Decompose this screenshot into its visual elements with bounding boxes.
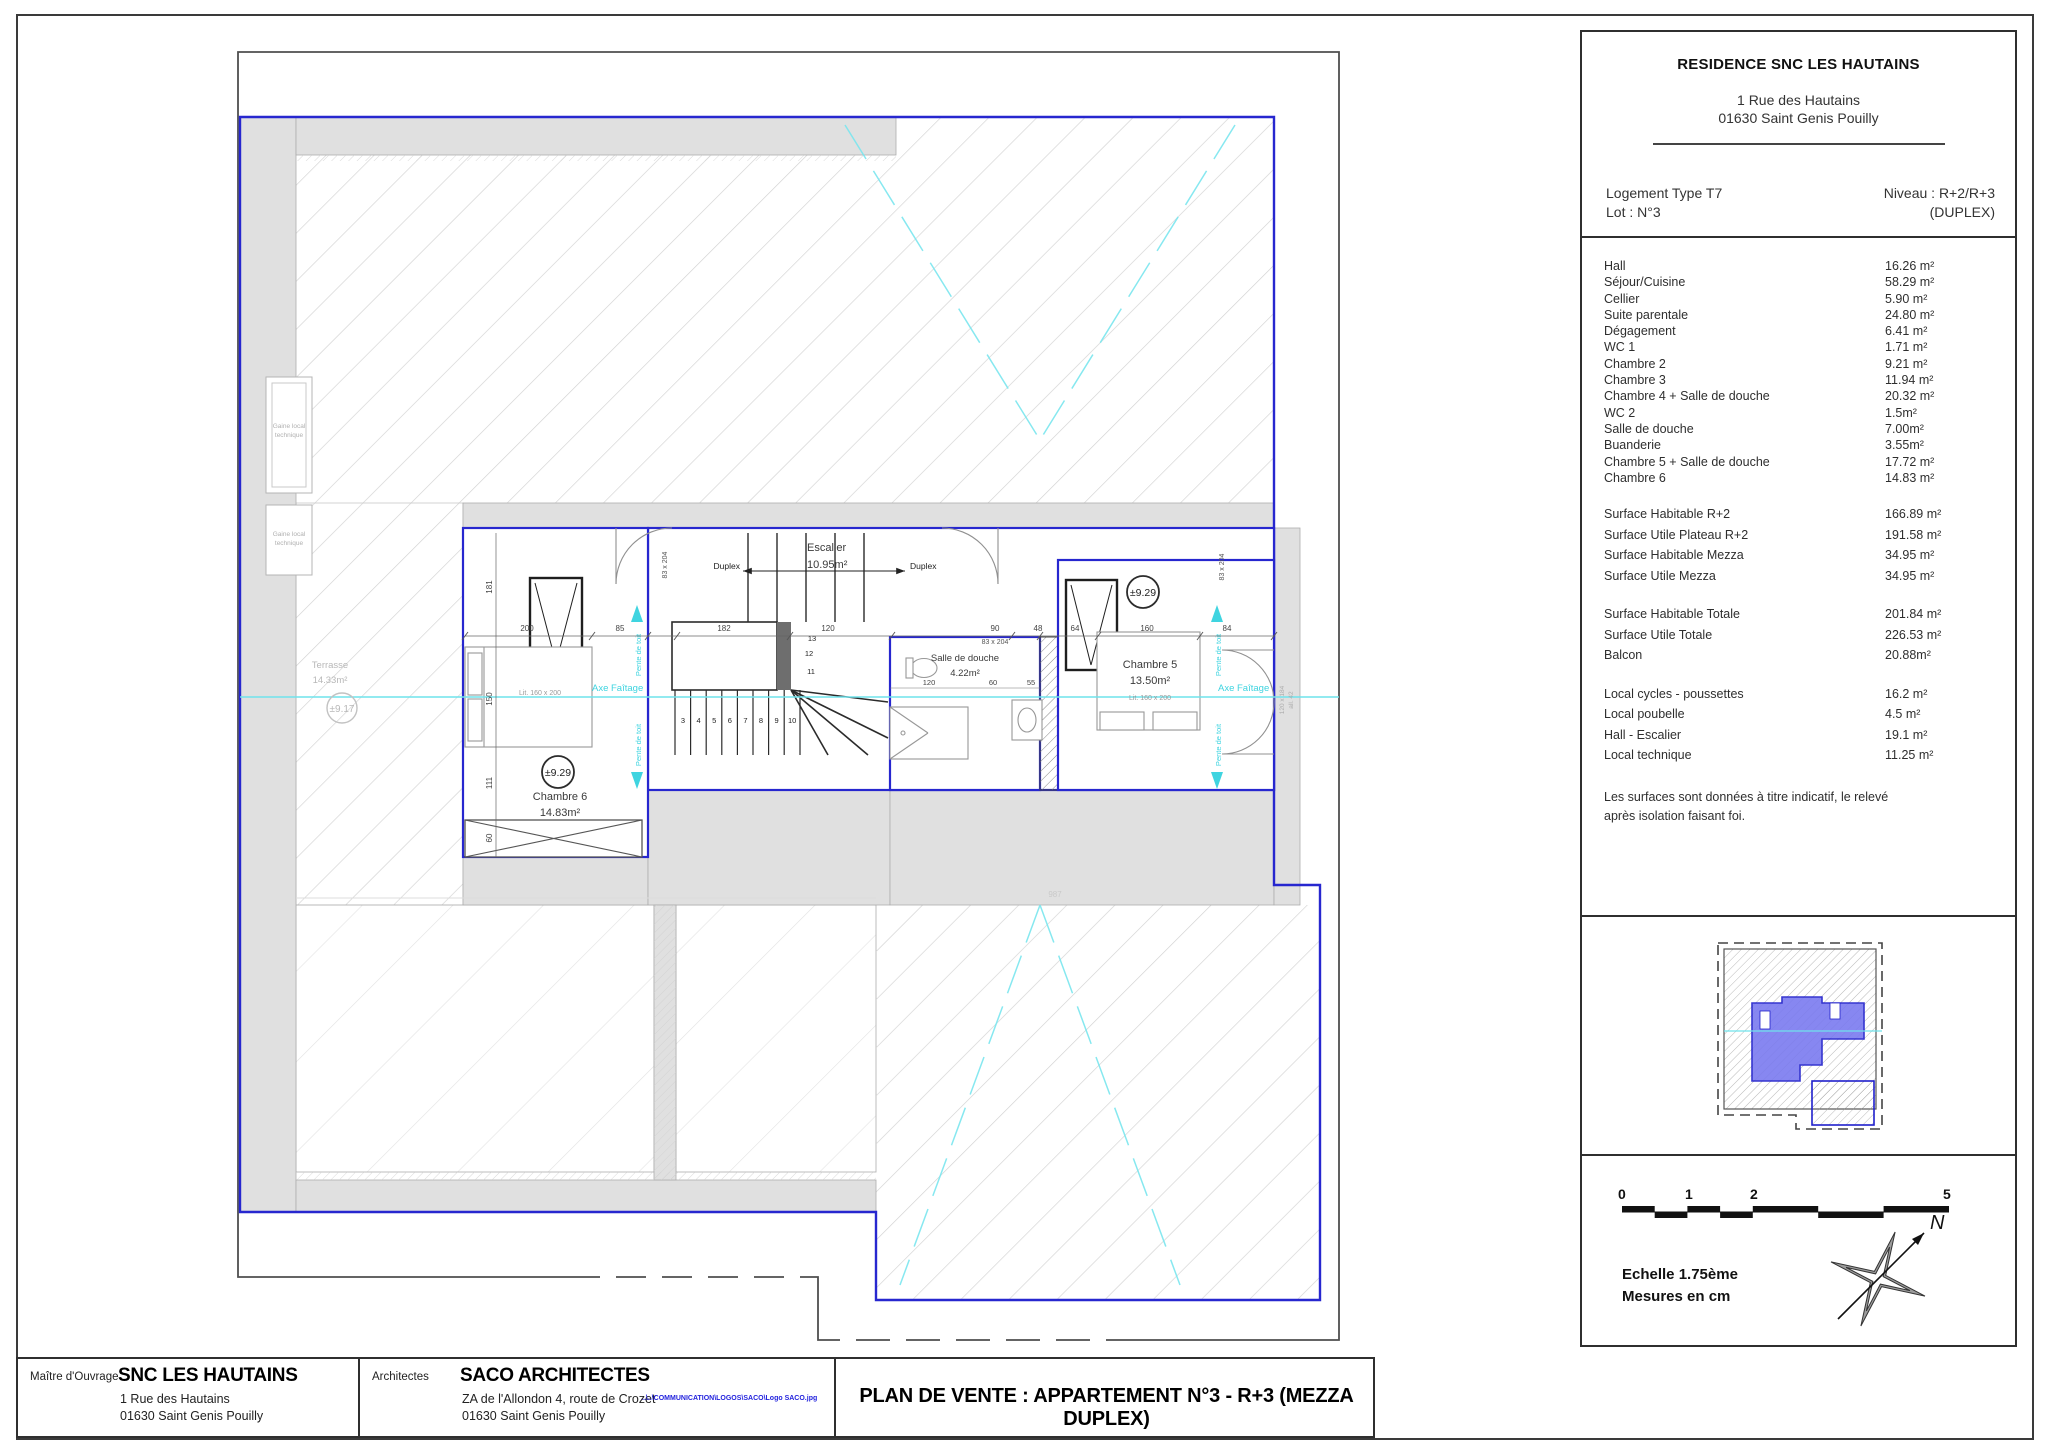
local-row: Local technique11.25 m²	[1604, 745, 1993, 766]
logement-type: Logement Type T7	[1606, 184, 1722, 203]
surface-row: Surface Utile Mezza34.95 m²	[1604, 566, 1993, 587]
room-row: Chambre 29.21 m²	[1604, 356, 1993, 372]
terrace-hatch	[296, 503, 463, 905]
niveau-duplex: (DUPLEX)	[1884, 203, 1995, 222]
gaine-label-2a: Gaine local	[273, 531, 306, 538]
svg-text:5: 5	[712, 716, 716, 725]
architect-address-2: 01630 Saint Genis Pouilly	[462, 1408, 655, 1425]
units-label: Mesures en cm	[1622, 1286, 1738, 1308]
room-row: WC 11.71 m²	[1604, 339, 1993, 355]
scale-tick-1: 1	[1685, 1186, 1693, 1202]
room-row: Cellier5.90 m²	[1604, 291, 1993, 307]
ch5-bed-label: Lit. 160 x 200	[1129, 695, 1171, 702]
ch6-area: 14.83m²	[540, 807, 581, 819]
svg-text:160: 160	[1140, 624, 1154, 633]
svg-text:10: 10	[788, 716, 796, 725]
room-row: Hall16.26 m²	[1604, 258, 1993, 274]
gaine-label-1b: technique	[275, 432, 304, 439]
escalier-name: Escalier	[807, 542, 846, 554]
key-plan-thumbnail	[1700, 931, 1900, 1143]
svg-text:Pente de toit: Pente de toit	[634, 723, 643, 766]
duplex-label-right: Duplex	[910, 561, 937, 571]
north-compass: N	[1820, 1211, 1950, 1331]
owner-label: Maître d'Ouvrage	[30, 1371, 119, 1383]
axe-faitage-label-1: Axe Faîtage	[592, 683, 643, 694]
owner-address-2: 01630 Saint Genis Pouilly	[120, 1408, 263, 1425]
architect-name: SACO ARCHITECTES	[460, 1365, 650, 1387]
title-block: Maître d'Ouvrage SNC LES HAUTAINS 1 Rue …	[16, 1357, 1375, 1438]
svg-text:64: 64	[1071, 624, 1080, 633]
drawing-title-cell: PLAN DE VENTE : APPARTEMENT N°3 - R+3 (M…	[836, 1359, 1377, 1436]
svg-text:11: 11	[807, 667, 815, 676]
gaine-label-2b: technique	[275, 540, 304, 547]
surface-row: Surface Habitable Mezza34.95 m²	[1604, 545, 1993, 566]
residence-title: RESIDENCE SNC LES HAUTAINS	[1582, 56, 2015, 73]
gaine-label-1a: Gaine local	[273, 423, 306, 430]
svg-text:Pente de toit: Pente de toit	[1214, 723, 1223, 766]
ghost-dim: 987	[1048, 890, 1062, 899]
surface-note-line2: après isolation faisant foi.	[1604, 807, 1993, 826]
total-row: Balcon20.88m²	[1604, 645, 1993, 666]
svg-text:120: 120	[923, 678, 936, 687]
lot-number: Lot : N°3	[1606, 203, 1722, 222]
svg-text:13: 13	[808, 634, 816, 643]
info-panel: RESIDENCE SNC LES HAUTAINS 1 Rue des Hau…	[1580, 30, 2017, 1347]
scale-tick-0: 0	[1618, 1186, 1626, 1202]
architect-cell: Architectes SACO ARCHITECTES ZA de l'All…	[360, 1359, 836, 1436]
header-divider	[1653, 143, 1945, 145]
surfaces-section: Hall16.26 m² Séjour/Cuisine58.29 m² Cell…	[1580, 236, 2017, 917]
roof-hatch-bottom	[876, 905, 1320, 1300]
window-allege: all. 42	[1288, 691, 1295, 709]
svg-text:12: 12	[805, 649, 813, 658]
room-row: Buanderie3.55m²	[1604, 437, 1993, 453]
owner-cell: Maître d'Ouvrage SNC LES HAUTAINS 1 Rue …	[18, 1359, 360, 1436]
ch6-bed-label: Lit. 160 x 200	[519, 690, 561, 697]
panel-header: RESIDENCE SNC LES HAUTAINS 1 Rue des Hau…	[1580, 30, 2017, 238]
total-row: Surface Habitable Totale201.84 m²	[1604, 604, 1993, 625]
surface-note-line1: Les surfaces sont données à titre indica…	[1604, 788, 1993, 807]
room-row: WC 21.5m²	[1604, 405, 1993, 421]
room-row: Dégagement6.41 m²	[1604, 323, 1993, 339]
svg-text:6: 6	[728, 716, 732, 725]
scale-section: 0 1 2 5 Echelle 1.75ème Mesures en cm	[1580, 1154, 2017, 1347]
room-row: Séjour/Cuisine58.29 m²	[1604, 274, 1993, 290]
architect-address-1: ZA de l'Allondon 4, route de Crozet	[462, 1391, 655, 1408]
owner-address-1: 1 Rue des Hautains	[120, 1391, 263, 1408]
level-929-ch6: ±9.29	[545, 767, 571, 779]
svg-text:150: 150	[485, 692, 494, 706]
svg-text:9: 9	[775, 716, 779, 725]
room-row: Salle de douche7.00m²	[1604, 421, 1993, 437]
stair-spine-wall	[777, 622, 791, 690]
ch6-name: Chambre 6	[533, 791, 587, 803]
room-row: Chambre 614.83 m²	[1604, 470, 1993, 486]
duplex-label-left: Duplex	[714, 561, 741, 571]
svg-text:120: 120	[821, 624, 835, 633]
keyplan-section	[1580, 915, 2017, 1156]
architect-label: Architectes	[372, 1371, 429, 1383]
surface-row: Surface Utile Plateau R+2191.58 m²	[1604, 525, 1993, 546]
door-dim-2: 83 x 204	[1219, 553, 1226, 580]
svg-text:8: 8	[759, 716, 763, 725]
escalier-area: 10.95m²	[807, 559, 848, 571]
party-wall-hatch	[654, 905, 676, 1180]
svg-text:111: 111	[485, 776, 494, 789]
scale-tick-2: 2	[1750, 1186, 1758, 1202]
logo-broken-path: ..\..\COMMUNICATION\LOGOS\SACO\Logo SACO…	[642, 1395, 817, 1402]
ch5-name: Chambre 5	[1123, 659, 1177, 671]
svg-text:90: 90	[991, 624, 1000, 633]
drawing-title: PLAN DE VENTE : APPARTEMENT N°3 - R+3 (M…	[836, 1385, 1377, 1431]
terrasse-area: 14.33m²	[313, 675, 348, 686]
door-dim-1: 83 x 204	[662, 551, 669, 578]
window-dim: 120 x 184	[1279, 685, 1286, 714]
svg-text:182: 182	[717, 624, 731, 633]
north-label: N	[1930, 1212, 1945, 1234]
lower-room-left	[296, 905, 654, 1172]
svg-text:Pente de toit: Pente de toit	[634, 633, 643, 676]
door-dim-3: 83 x 204	[982, 639, 1009, 646]
sdd-name: Salle de douche	[931, 653, 999, 664]
svg-text:60: 60	[989, 678, 997, 687]
svg-text:3: 3	[681, 716, 685, 725]
roof-hatch-top	[296, 117, 1274, 503]
local-row: Local poubelle4.5 m²	[1604, 704, 1993, 725]
wall-edge-hatch-bottom	[296, 1172, 876, 1180]
level-917-terrace: ±9.17	[330, 704, 355, 715]
total-row: Surface Utile Totale226.53 m²	[1604, 625, 1993, 646]
sdd-area: 4.22m²	[950, 668, 980, 679]
svg-text:7: 7	[743, 716, 747, 725]
local-row: Local cycles - poussettes16.2 m²	[1604, 684, 1993, 705]
room-row: Chambre 311.94 m²	[1604, 372, 1993, 388]
svg-text:84: 84	[1223, 624, 1232, 633]
room-row: Chambre 4 + Salle de douche20.32 m²	[1604, 388, 1993, 404]
axe-faitage-label-2: Axe Faîtage	[1218, 683, 1269, 694]
local-row: Hall - Escalier19.1 m²	[1604, 725, 1993, 746]
niveau: Niveau : R+2/R+3	[1884, 184, 1995, 203]
technical-shafts: Gaine local technique Gaine local techni…	[266, 377, 312, 575]
svg-text:60: 60	[485, 833, 494, 842]
svg-text:55: 55	[1027, 678, 1035, 687]
level-929-ch5: ±9.29	[1130, 587, 1156, 599]
surface-row: Surface Habitable R+2166.89 m²	[1604, 504, 1993, 525]
ch5-area: 13.50m²	[1130, 675, 1171, 687]
svg-text:48: 48	[1034, 624, 1043, 633]
room-row: Suite parentale24.80 m²	[1604, 307, 1993, 323]
svg-text:85: 85	[616, 624, 625, 633]
room-row: Chambre 5 + Salle de douche17.72 m²	[1604, 454, 1993, 470]
scale-tick-5: 5	[1943, 1186, 1951, 1202]
terrasse-name: Terrasse	[312, 660, 348, 671]
plumbing-wall	[1040, 637, 1058, 790]
residence-address-1: 1 Rue des Hautains	[1582, 91, 2015, 109]
scale-label: Echelle 1.75ème	[1622, 1264, 1738, 1286]
lower-room-right	[676, 905, 876, 1172]
svg-text:181: 181	[485, 580, 494, 594]
svg-text:200: 200	[520, 624, 534, 633]
wall-edge-hatch-top	[296, 155, 896, 161]
svg-text:4: 4	[697, 716, 701, 725]
residence-address-2: 01630 Saint Genis Pouilly	[1582, 109, 2015, 127]
svg-text:Pente de toit: Pente de toit	[1214, 633, 1223, 676]
owner-name: SNC LES HAUTAINS	[118, 1365, 298, 1387]
